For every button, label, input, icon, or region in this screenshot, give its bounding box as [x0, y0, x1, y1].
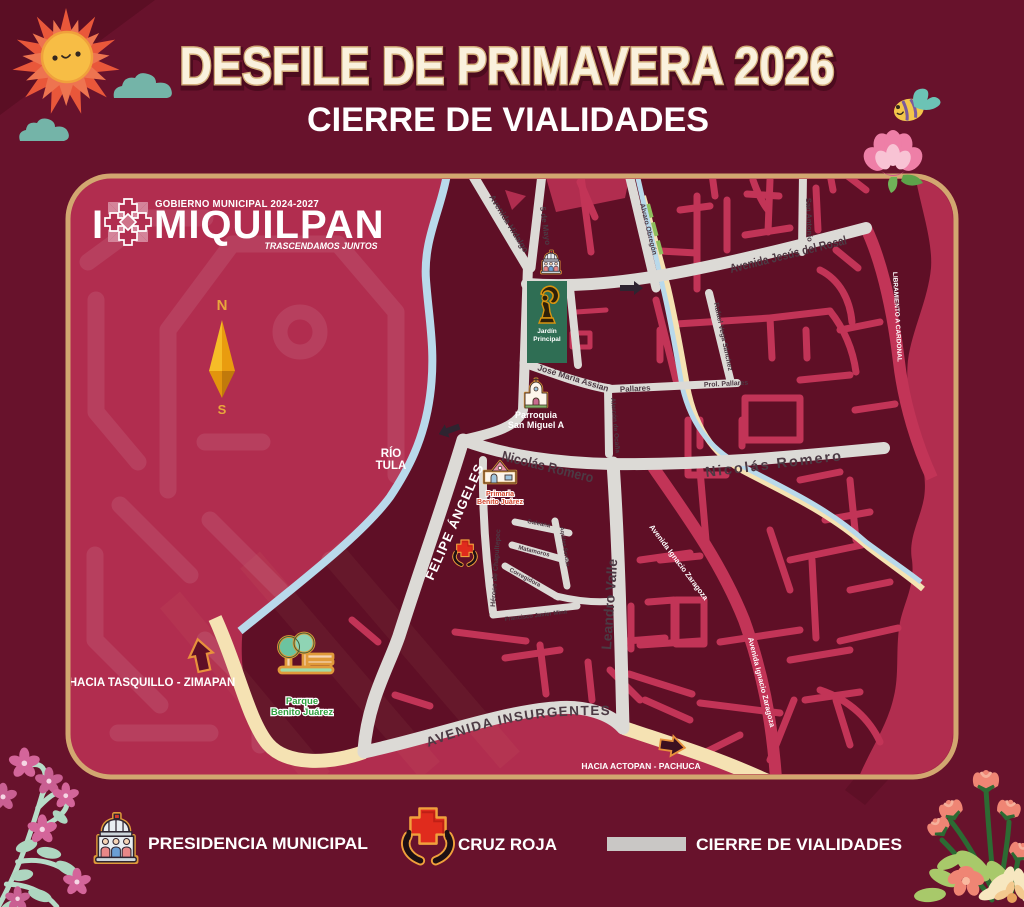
svg-text:CIERRE DE VIALIDADES: CIERRE DE VIALIDADES	[307, 101, 709, 139]
svg-text:Parroquia: Parroquia	[515, 410, 558, 420]
svg-text:Benito Juárez: Benito Juárez	[271, 707, 334, 718]
svg-text:San Antonio: San Antonio	[804, 198, 815, 243]
svg-text:S: S	[218, 402, 227, 417]
svg-text:Benito Juárez: Benito Juárez	[477, 499, 523, 506]
svg-text:Principal: Principal	[533, 336, 561, 343]
svg-text:N: N	[217, 297, 228, 314]
svg-text:Primaria: Primaria	[486, 491, 514, 498]
svg-text:DESFILE DE PRIMAVERA 2026: DESFILE DE PRIMAVERA 2026	[180, 37, 835, 96]
svg-text:RÍO: RÍO	[381, 447, 402, 460]
svg-text:CRUZ ROJA: CRUZ ROJA	[458, 836, 557, 854]
svg-text:HACIA TASQUILLO - ZIMAPAN: HACIA TASQUILLO - ZIMAPAN	[69, 677, 236, 689]
svg-text:Parque: Parque	[286, 696, 318, 707]
svg-text:San Miguel A: San Miguel A	[508, 420, 565, 430]
svg-text:HACIA ACTOPAN - PACHUCA: HACIA ACTOPAN - PACHUCA	[581, 761, 700, 771]
svg-text:PRESIDENCIA MUNICIPAL: PRESIDENCIA MUNICIPAL	[148, 835, 368, 853]
svg-text:I: I	[92, 203, 103, 247]
svg-text:Pallares: Pallares	[620, 383, 652, 394]
svg-text:TRASCENDAMOS JUNTOS: TRASCENDAMOS JUNTOS	[265, 241, 379, 252]
svg-text:TULA: TULA	[376, 460, 407, 472]
svg-text:Jardín: Jardín	[537, 328, 557, 335]
svg-text:CIERRE DE VIALIDADES: CIERRE DE VIALIDADES	[696, 836, 902, 854]
